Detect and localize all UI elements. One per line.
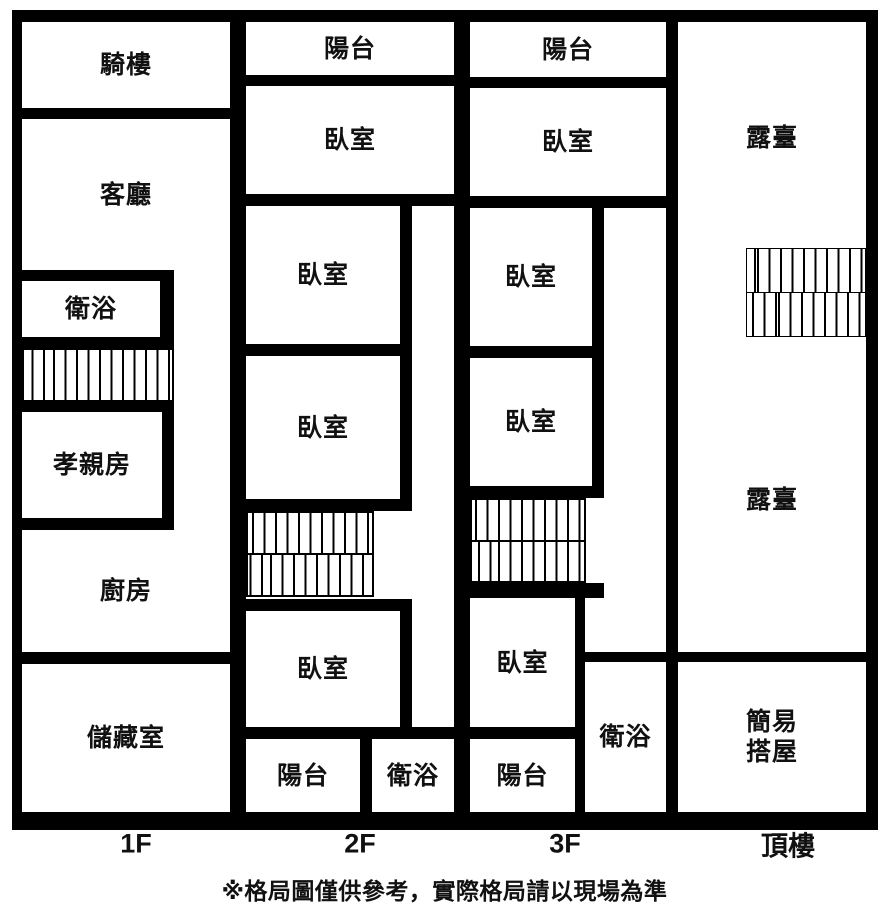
room-label: 臥室 xyxy=(297,654,349,684)
room-1f-weiyu: 衛浴 xyxy=(22,281,160,337)
room-label: 陽台 xyxy=(496,761,548,791)
stair-flight xyxy=(248,513,372,553)
room-label: 臥室 xyxy=(542,127,594,157)
room-roof-lutai: 露臺 露臺 xyxy=(678,22,866,652)
stairs-2f-icon xyxy=(246,511,374,597)
room-label: 儲藏室 xyxy=(87,723,165,753)
stair-flight xyxy=(747,249,865,292)
room-3f-weiyu: 衛浴 xyxy=(585,662,666,812)
room-label: 臥室 xyxy=(496,648,548,678)
corridor-3f-lower xyxy=(585,598,666,652)
room-3f-woshi-2: 臥室 xyxy=(470,208,592,346)
stairs-3f-icon xyxy=(470,498,586,583)
room-2f-woshi-1: 臥室 xyxy=(246,86,454,194)
room-2f-woshi-2: 臥室 xyxy=(246,206,400,344)
room-3f-woshi-4: 臥室 xyxy=(470,598,575,727)
room-label: 簡易 xyxy=(746,707,798,737)
room-1f-xiaoqinfang: 孝親房 xyxy=(22,412,162,518)
room-2f-woshi-4: 臥室 xyxy=(246,611,400,727)
room-label: 廚房 xyxy=(100,576,152,606)
room-label: 露臺 xyxy=(678,118,866,154)
room-label: 陽台 xyxy=(542,35,594,65)
room-label: 客廳 xyxy=(100,180,152,210)
stair-flight xyxy=(472,500,584,540)
room-label: 騎樓 xyxy=(100,50,152,80)
room-2f-woshi-3: 臥室 xyxy=(246,356,400,499)
room-label: 臥室 xyxy=(505,407,557,437)
floor-label-1f: 1F xyxy=(120,829,152,860)
stair-flight xyxy=(747,292,865,336)
room-label: 臥室 xyxy=(297,413,349,443)
corridor-2f xyxy=(412,206,454,727)
stair-flight xyxy=(24,350,172,400)
room-label: 陽台 xyxy=(277,761,329,791)
room-3f-yangtai-bottom: 陽台 xyxy=(470,739,575,812)
floor-label-roof: 頂樓 xyxy=(761,825,815,864)
room-label: 臥室 xyxy=(324,125,376,155)
room-roof-shed: 簡易 搭屋 xyxy=(678,662,866,812)
room-label: 臥室 xyxy=(505,262,557,292)
floor-label-2f: 2F xyxy=(344,829,376,860)
corridor-1f xyxy=(174,270,230,532)
room-1f-chucangshi: 儲藏室 xyxy=(22,664,230,812)
stair-flight xyxy=(248,553,372,595)
room-1f-keting: 客廳 xyxy=(22,119,230,270)
room-3f-yangtai-top: 陽台 xyxy=(470,22,666,77)
stairs-1f-icon xyxy=(22,348,174,402)
floor-plan: 騎樓 客廳 衛浴 孝親房 廚房 儲藏室 陽台 臥室 臥室 臥室 臥室 陽台 xyxy=(0,0,889,916)
room-3f-woshi-1: 臥室 xyxy=(470,88,666,196)
floor-label-3f: 3F xyxy=(549,829,581,860)
corridor-3f xyxy=(604,208,666,652)
room-3f-woshi-3: 臥室 xyxy=(470,358,592,486)
room-1f-qilou: 騎樓 xyxy=(22,22,230,108)
room-2f-yangtai-bottom: 陽台 xyxy=(246,739,360,812)
room-label: 孝親房 xyxy=(53,450,131,480)
room-label: 搭屋 xyxy=(746,737,798,767)
room-label: 露臺 xyxy=(678,480,866,516)
room-label: 陽台 xyxy=(324,34,376,64)
room-label: 衛浴 xyxy=(599,722,651,752)
room-label: 衛浴 xyxy=(65,294,117,324)
room-label: 臥室 xyxy=(297,260,349,290)
room-1f-chufang: 廚房 xyxy=(22,530,230,652)
stairs-roof-icon xyxy=(746,248,866,337)
disclaimer-note: ※格局圖僅供參考，實際格局請以現場為準 xyxy=(0,872,889,906)
room-2f-weiyu: 衛浴 xyxy=(372,739,454,812)
room-2f-yangtai-top: 陽台 xyxy=(246,22,454,75)
stair-flight xyxy=(472,540,584,582)
room-label: 衛浴 xyxy=(387,761,439,791)
